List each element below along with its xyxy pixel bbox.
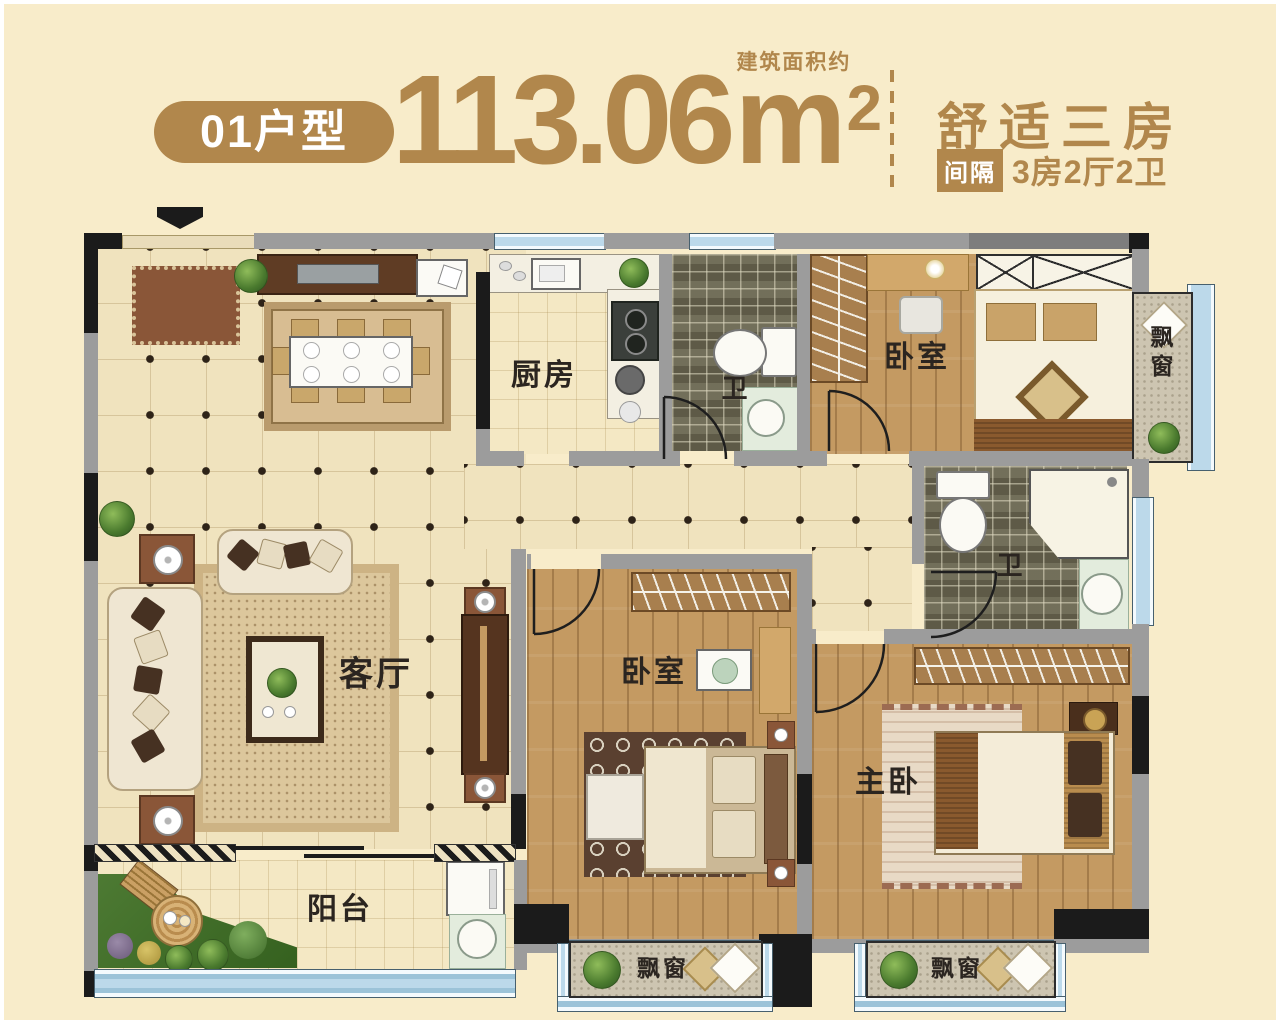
screenshot-canvas: 01户型 113.06 建筑面积约 m 2 舒适三房 间隔 3房2厅2卫 [0, 0, 1280, 1024]
door-master [816, 644, 884, 712]
label-bath-top: 卫 [721, 369, 750, 406]
door-bedroom-top [829, 391, 889, 451]
label-bedroom-middle: 卧室 [621, 647, 687, 691]
label-bath-middle: 卫 [996, 546, 1025, 583]
page-background: 01户型 113.06 建筑面积约 m 2 舒适三房 间隔 3房2厅2卫 [4, 4, 1276, 1020]
label-bay-right: 飘窗 [1143, 325, 1177, 383]
label-living: 客厅 [339, 647, 413, 696]
area-value: 113.06 [392, 60, 728, 180]
label-bedroom-top: 卧室 [884, 332, 950, 376]
door-bath-top [664, 397, 726, 459]
header-dashed-divider [890, 70, 894, 188]
label-master: 主卧 [855, 757, 921, 801]
door-bath-middle [931, 572, 996, 637]
layout-text: 3房2厅2卫 [1012, 147, 1167, 193]
door-bedroom-middle [534, 569, 599, 634]
unit-type-badge: 01户型 [154, 101, 394, 163]
label-bay-bottom-right: 飘窗 [931, 949, 983, 983]
label-kitchen: 厨房 [511, 350, 577, 394]
layout-badge: 间隔 [937, 149, 1003, 192]
label-balcony: 阳台 [307, 884, 373, 928]
area-note: 建筑面积约 [736, 46, 851, 76]
area-unit: 建筑面积约 m [734, 60, 846, 180]
door-swings [79, 229, 1219, 1014]
label-bay-bottom-left: 飘窗 [637, 949, 689, 983]
entrance-arrow [157, 207, 203, 229]
floor-plan: 厨房 卫 卧室 飘窗 卫 客厅 卧室 主卧 阳台 飘窗 飘窗 [79, 229, 1219, 1014]
area-figure: 113.06 建筑面积约 m 2 [392, 60, 882, 180]
area-unit-superscript: 2 [846, 76, 882, 140]
layout-row: 间隔 3房2厅2卫 [937, 147, 1167, 193]
